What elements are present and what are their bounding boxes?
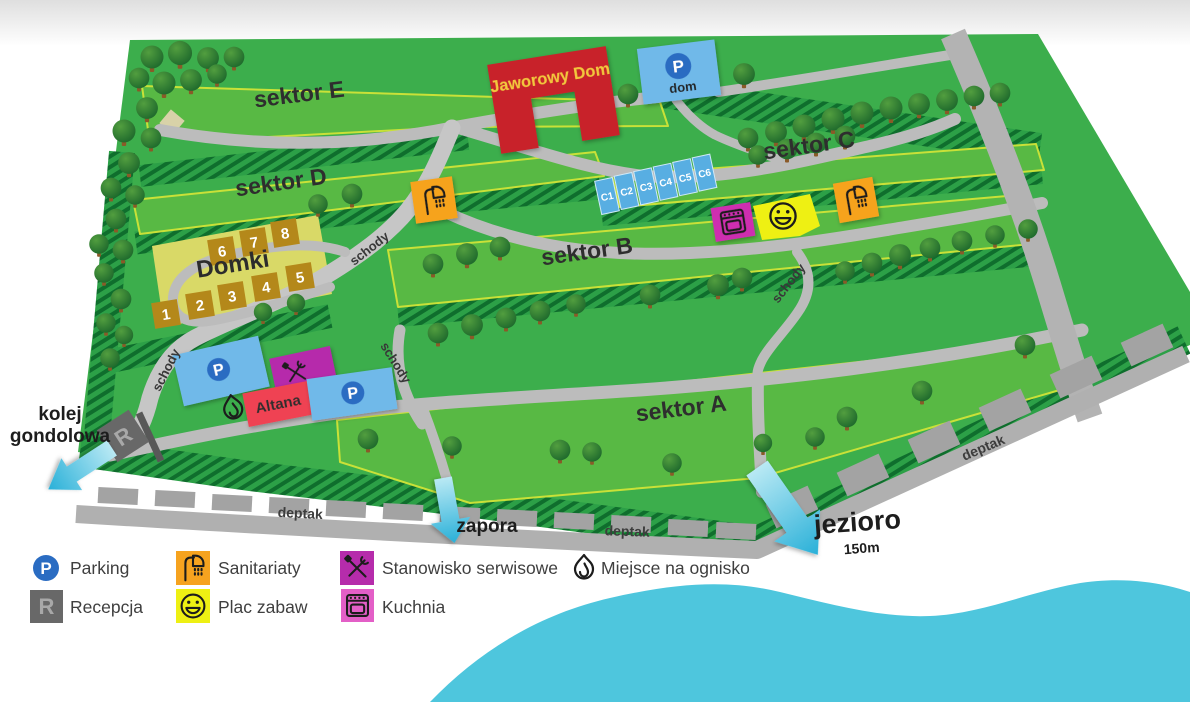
kuchnia-building xyxy=(711,202,756,242)
legend-reception-letter: R xyxy=(39,594,55,619)
deptak-dash xyxy=(668,519,709,537)
legend-parking-letter: P xyxy=(40,559,51,578)
campsite-map-page: Jaworowy Dom P dom C1 C2 C3 C4 C5 C6 1 2… xyxy=(0,0,1190,702)
legend-plac-zabaw-label: Plac zabaw xyxy=(218,597,308,617)
jezioro-distance-label: 150m xyxy=(843,539,880,557)
legend-item-parking: P Parking xyxy=(33,555,129,581)
deptak-dash xyxy=(98,487,139,505)
kolej-gondolowa-label-line2: gondolowa xyxy=(10,426,111,447)
legend-stanowisko-label: Stanowisko serwisowe xyxy=(382,558,558,578)
zapora-label: zapora xyxy=(456,516,518,537)
legend-recepcja-label: Recepcja xyxy=(70,597,143,617)
jezioro-label: jezioro xyxy=(812,504,902,540)
deptak-dash xyxy=(716,522,757,540)
kolej-gondolowa-label-line1: kolej xyxy=(38,404,81,425)
deptak-dash xyxy=(554,512,595,530)
deptak-dash xyxy=(383,503,424,521)
deptak-label: deptak xyxy=(604,522,650,540)
legend-sanitariaty-label: Sanitariaty xyxy=(218,558,301,578)
deptak-dash xyxy=(212,494,253,512)
deptak-dash xyxy=(326,500,367,518)
legend-parking-label: Parking xyxy=(70,558,129,578)
deptak-dash xyxy=(155,490,196,508)
deptak-label: deptak xyxy=(277,504,323,522)
sanitariaty-right xyxy=(833,177,879,223)
campsite-map: Jaworowy Dom P dom C1 C2 C3 C4 C5 C6 1 2… xyxy=(0,0,1190,702)
legend-item-ognisko: Miejsce na ognisko xyxy=(575,555,750,579)
parking-dom-letter: P xyxy=(672,56,686,76)
parking-dom: P dom xyxy=(637,39,721,104)
legend-ognisko-label: Miejsce na ognisko xyxy=(601,558,750,578)
legend-kuchnia-label: Kuchnia xyxy=(382,597,446,617)
sanitariaty-left xyxy=(410,176,457,223)
